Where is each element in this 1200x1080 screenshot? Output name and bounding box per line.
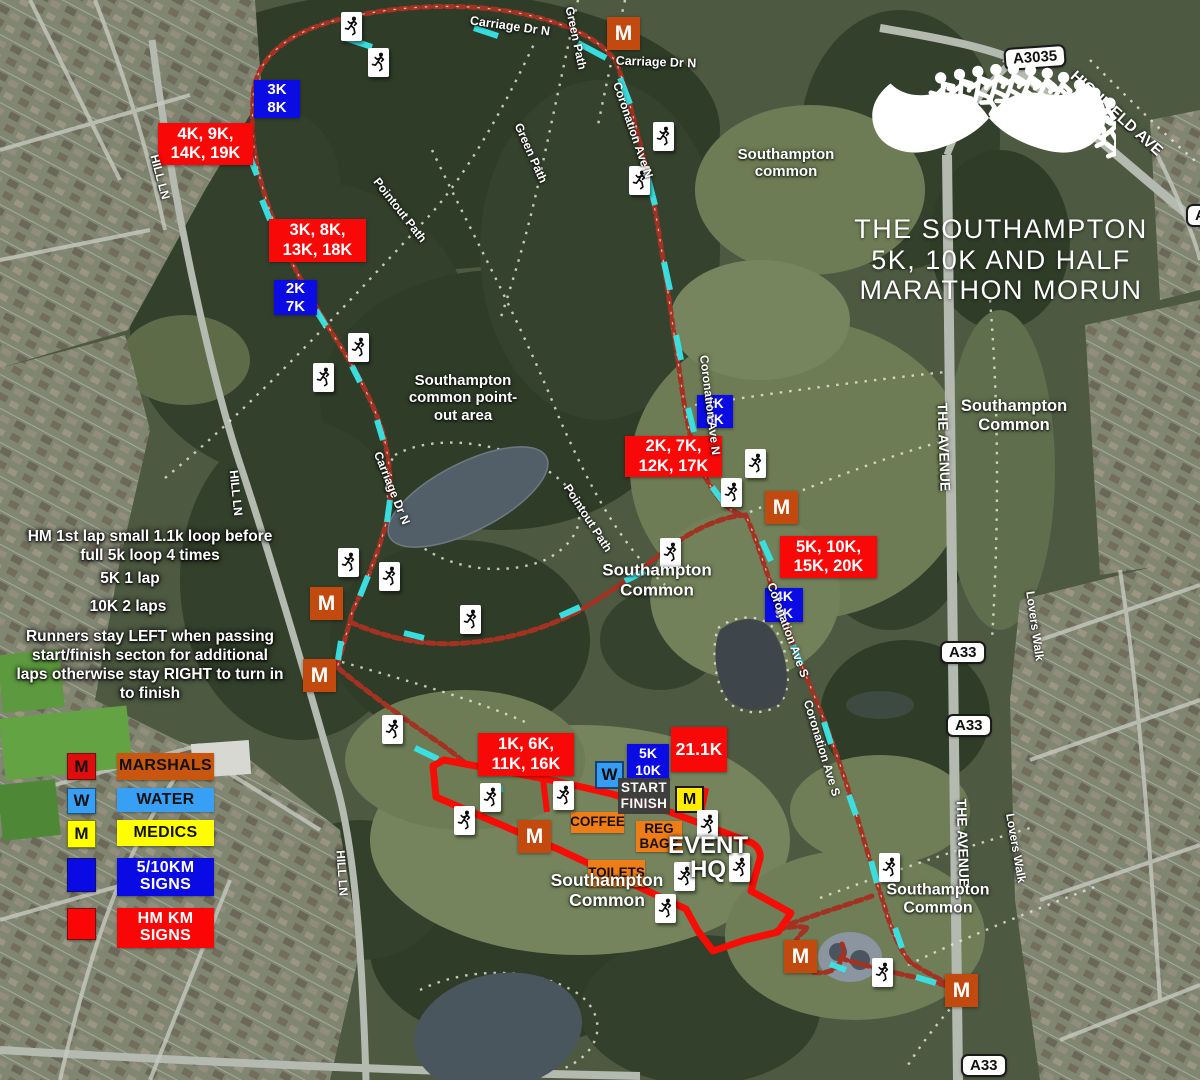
marshal-marker: M — [784, 940, 817, 973]
road-label: Pointout Path — [561, 481, 615, 554]
area-label: Southampton Common — [602, 560, 712, 599]
legend-label: MARSHALS — [117, 753, 214, 780]
runner-glyph — [881, 855, 899, 880]
moustache-icon — [862, 64, 1116, 168]
event-hq-label: EVENT HQ — [660, 834, 756, 882]
km-5-10-sign: 3K 8K — [254, 80, 300, 118]
area-label: Southampton Common — [551, 870, 664, 910]
start-finish-box: START FINISH — [618, 778, 670, 814]
hm-km-sign: 3K, 8K, 13K, 18K — [269, 219, 366, 262]
marshal-marker: M — [310, 587, 343, 620]
road-label: Carriage Dr N — [469, 13, 551, 38]
legend-label: WATER — [117, 788, 214, 812]
event-title-line2: 5K, 10K AND HALF — [828, 245, 1174, 276]
legend-swatch — [67, 908, 96, 940]
runner-glyph — [655, 124, 673, 149]
instruction-stay-left: Runners stay LEFT when passing start/fin… — [0, 628, 300, 704]
runner-glyph — [555, 783, 573, 808]
area-label: Southampton Common — [886, 882, 989, 919]
runner-icon — [721, 478, 742, 507]
facility-box: COFFEE — [571, 812, 624, 833]
instruction-hm-laps: HM 1st lap small 1.1k loop before full 5… — [8, 528, 292, 566]
morun-moustache-logo — [862, 64, 1116, 168]
marshal-marker: M — [518, 820, 551, 853]
runner-icon — [341, 12, 362, 41]
medic-marker: M — [675, 786, 704, 813]
area-label: Southampton common point- out area — [409, 372, 517, 424]
runner-icon — [480, 783, 501, 812]
runner-icon — [872, 958, 893, 987]
runner-icon — [368, 48, 389, 77]
legend-label: 5/10KM SIGNS — [117, 858, 214, 896]
area-label: Southampton Common — [961, 397, 1067, 435]
runner-glyph — [723, 480, 741, 505]
runner-glyph — [340, 550, 358, 575]
runner-icon — [460, 605, 481, 634]
road-label: Green Path — [562, 5, 589, 71]
instruction-5k-laps: 5K 1 lap — [55, 570, 205, 589]
road-label: HILL LN — [227, 470, 246, 517]
runner-icon — [745, 449, 766, 478]
road-label: Carriage Dr N — [615, 54, 696, 71]
hm-km-sign: 1K, 6K, 11K, 16K — [478, 733, 574, 776]
runner-icon — [553, 781, 574, 810]
runner-icon — [382, 715, 403, 744]
marshal-marker: M — [945, 974, 978, 1007]
road-sign: A33 — [946, 714, 992, 737]
marshal-marker: M — [303, 659, 336, 692]
instruction-10k-laps: 10K 2 laps — [53, 598, 203, 617]
legend-swatch: M — [67, 753, 96, 780]
km-5-10-sign: 5K 10K — [627, 744, 669, 780]
runner-glyph — [384, 717, 402, 742]
hm-km-sign: 21.1K — [671, 727, 727, 772]
runner-glyph — [482, 785, 500, 810]
road-sign: A33 — [940, 641, 986, 664]
runner-glyph — [456, 808, 474, 833]
runner-glyph — [747, 451, 765, 476]
runner-glyph — [370, 50, 388, 75]
runner-icon — [454, 806, 475, 835]
road-label: Lovers Walk — [1023, 590, 1047, 662]
road-label: THE AVENUE — [953, 798, 972, 887]
runner-glyph — [350, 335, 368, 360]
runner-glyph — [462, 607, 480, 632]
runner-glyph — [315, 365, 333, 390]
road-label: Coronation Ave S — [801, 698, 844, 798]
legend-swatch — [67, 858, 96, 892]
road-label: Coronation Ave N — [610, 80, 656, 180]
runner-icon — [653, 122, 674, 151]
legend-label: MEDICS — [117, 820, 214, 846]
event-title-line1: THE SOUTHAMPTON — [828, 214, 1174, 245]
event-title: THE SOUTHAMPTON 5K, 10K AND HALF MARATHO… — [828, 214, 1174, 306]
km-5-10-sign: 2K 7K — [274, 280, 317, 315]
runner-icon — [379, 562, 400, 591]
road-sign: A33 — [1186, 204, 1200, 227]
road-label: THE AVENUE — [934, 402, 953, 491]
runner-icon — [313, 363, 334, 392]
legend-swatch: W — [67, 788, 96, 814]
runner-icon — [879, 853, 900, 882]
legend-swatch: M — [67, 820, 96, 848]
road-label: Lovers Walk — [1003, 812, 1029, 884]
legend-label: HM KM SIGNS — [117, 908, 214, 948]
runner-glyph — [381, 564, 399, 589]
course-map: 4K, 9K, 14K, 19K3K, 8K, 13K, 18K2K, 7K, … — [0, 0, 1200, 1080]
area-label: Southampton common — [738, 146, 835, 181]
road-label: Pointout Path — [370, 175, 429, 245]
runner-icon — [348, 333, 369, 362]
road-label: Carriage Dr N — [371, 450, 413, 527]
road-label: HILL LN — [333, 850, 350, 897]
event-title-line3: MARATHON MORUN — [828, 275, 1174, 306]
runner-icon — [338, 548, 359, 577]
hm-km-sign: 4K, 9K, 14K, 19K — [158, 123, 253, 165]
runner-glyph — [343, 14, 361, 39]
runner-glyph — [874, 960, 892, 985]
marshal-marker: M — [765, 491, 798, 524]
marshal-marker: M — [607, 17, 640, 50]
hm-km-sign: 5K, 10K, 15K, 20K — [780, 536, 877, 578]
road-label: Green Path — [512, 121, 551, 185]
road-sign: A33 — [961, 1054, 1007, 1077]
